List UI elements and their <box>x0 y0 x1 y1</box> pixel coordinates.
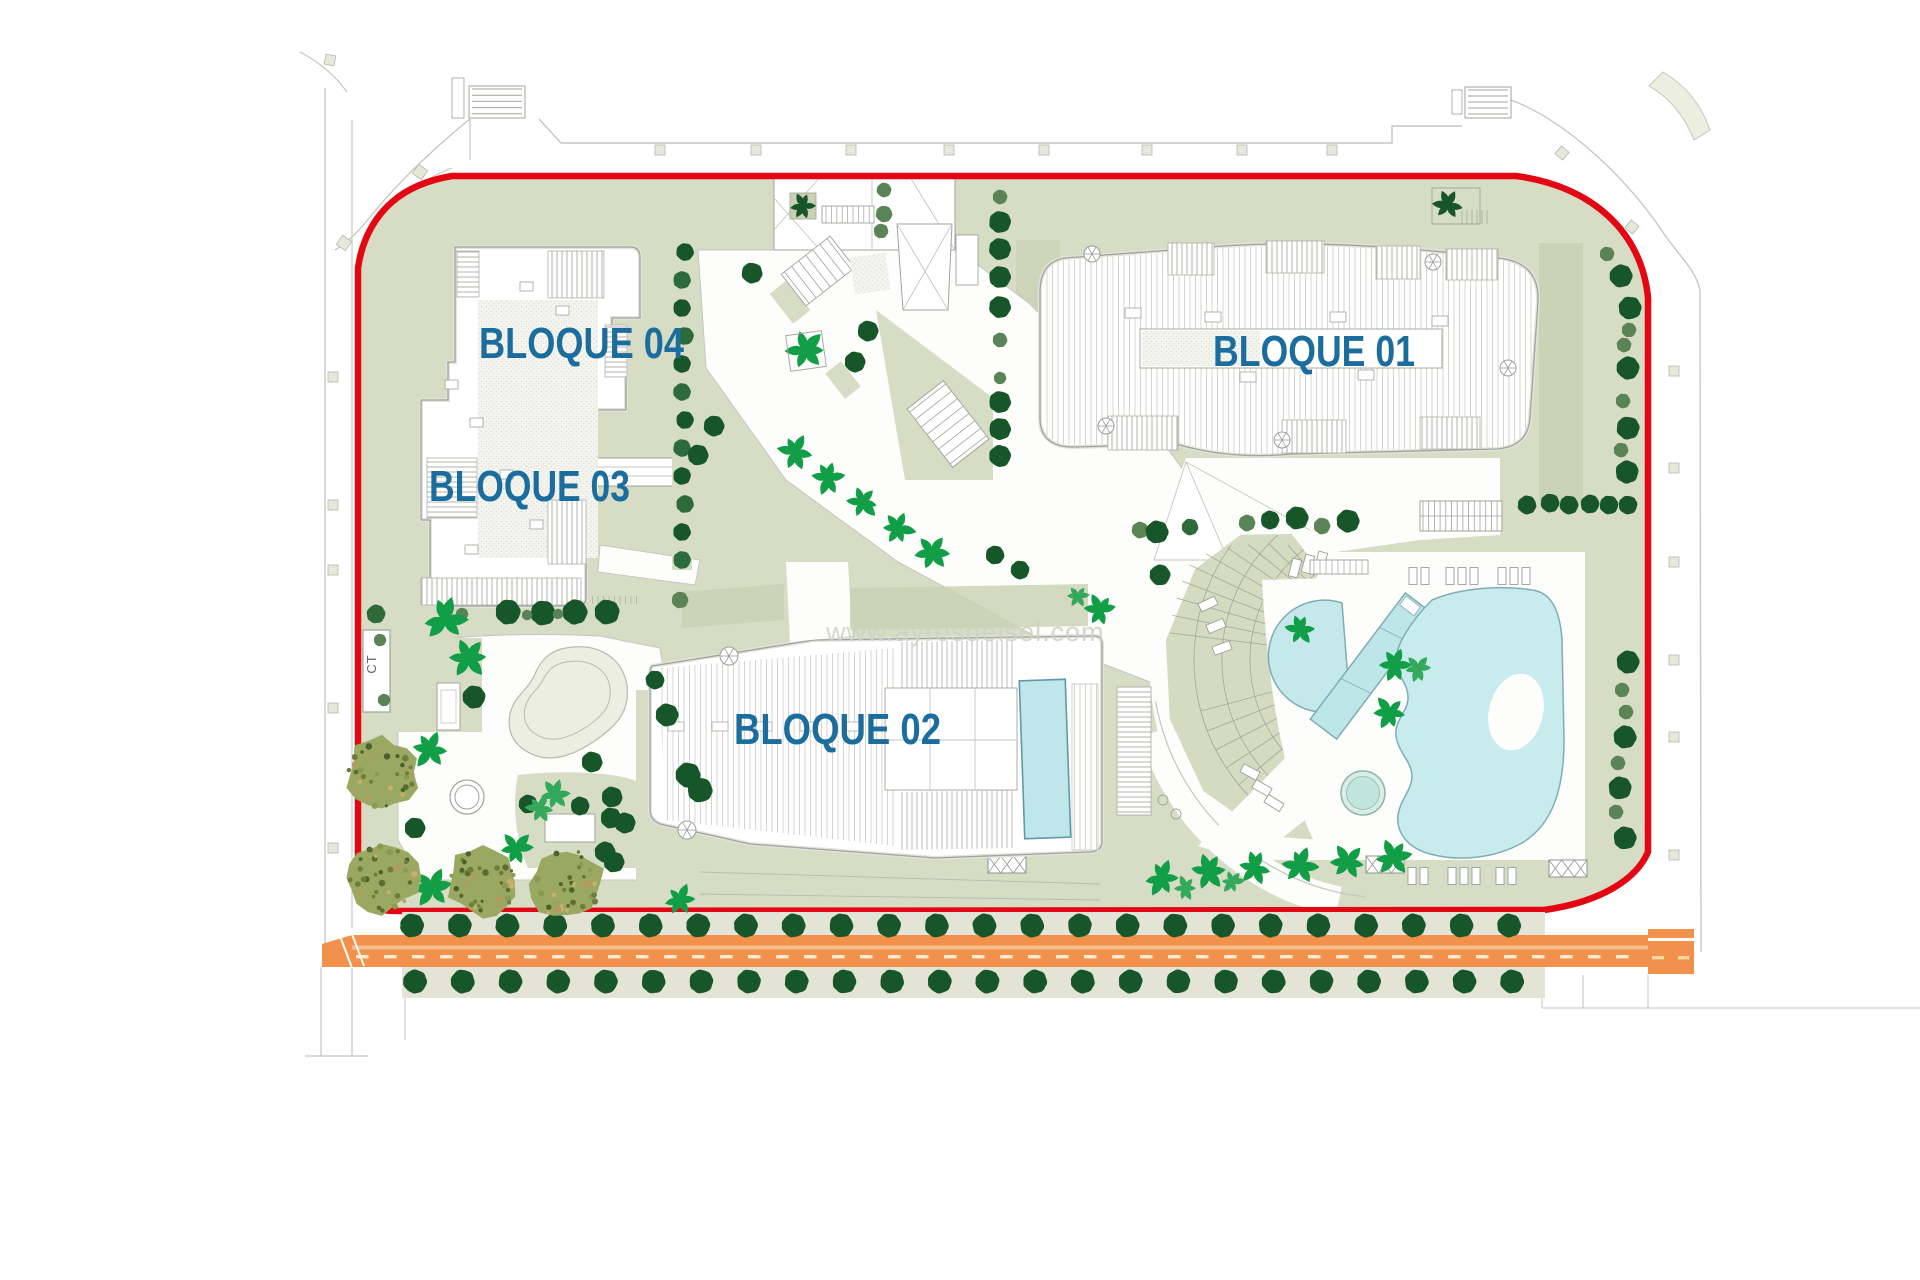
svg-text:CT: CT <box>364 654 379 673</box>
svg-text:www.ayresdelsol.com: www.ayresdelsol.com <box>825 617 1105 647</box>
svg-text:BLOQUE 02: BLOQUE 02 <box>734 705 941 754</box>
svg-text:BLOQUE 03: BLOQUE 03 <box>429 462 630 511</box>
svg-text:BLOQUE 01: BLOQUE 01 <box>1213 327 1415 376</box>
svg-text:BLOQUE 04: BLOQUE 04 <box>479 319 684 368</box>
